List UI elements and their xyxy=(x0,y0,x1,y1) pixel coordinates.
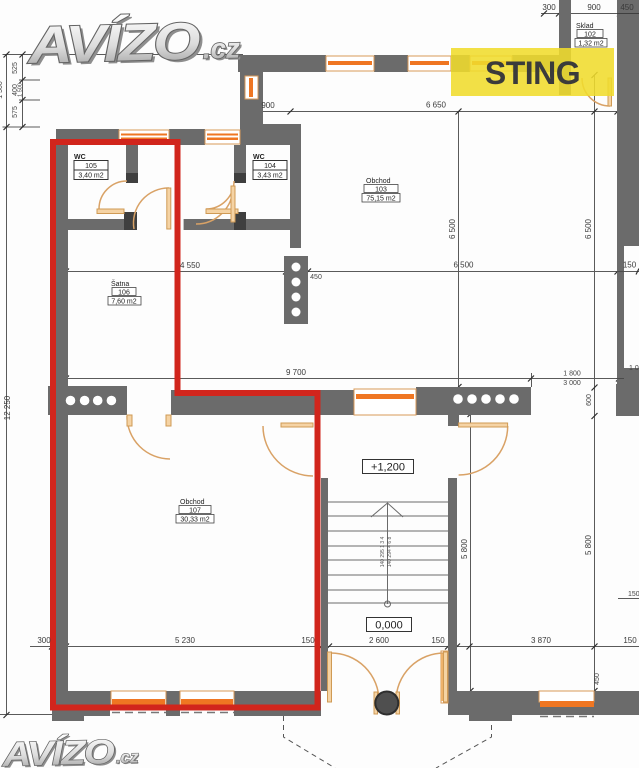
svg-text:300: 300 xyxy=(37,636,51,645)
svg-text:150: 150 xyxy=(431,636,445,645)
svg-text:1 800: 1 800 xyxy=(563,371,581,378)
svg-text:525: 525 xyxy=(12,62,19,74)
svg-text:5 230: 5 230 xyxy=(175,636,196,645)
svg-text:STING: STING xyxy=(485,55,580,91)
svg-text:450: 450 xyxy=(594,673,601,685)
svg-text:4 550: 4 550 xyxy=(180,261,201,270)
svg-text:450: 450 xyxy=(620,3,634,12)
svg-text:75,15 m2: 75,15 m2 xyxy=(366,196,395,203)
svg-text:300: 300 xyxy=(542,3,556,12)
svg-text:575: 575 xyxy=(12,106,19,118)
svg-text:6 500: 6 500 xyxy=(453,261,474,270)
svg-text:3,43 m2: 3,43 m2 xyxy=(257,173,282,180)
svg-text:12 250: 12 250 xyxy=(3,395,12,420)
svg-text:140 294 4 6 8: 140 294 4 6 8 xyxy=(387,536,393,567)
svg-text:7,60 m2: 7,60 m2 xyxy=(111,299,136,306)
svg-text:102: 102 xyxy=(584,32,596,39)
svg-text:104: 104 xyxy=(264,163,276,170)
svg-text:9 700: 9 700 xyxy=(286,368,307,377)
svg-text:WC: WC xyxy=(253,154,265,161)
svg-text:1 500: 1 500 xyxy=(0,81,4,99)
svg-text:1 500: 1 500 xyxy=(18,83,24,97)
svg-text:Sklad: Sklad xyxy=(576,23,594,30)
svg-text:150: 150 xyxy=(623,261,637,270)
svg-text:107: 107 xyxy=(189,508,201,515)
svg-text:600: 600 xyxy=(586,394,593,406)
svg-text:.cz: .cz xyxy=(116,747,140,767)
svg-text:3 870: 3 870 xyxy=(531,636,552,645)
svg-text:6 500: 6 500 xyxy=(584,218,593,239)
svg-text:5 800: 5 800 xyxy=(584,534,593,555)
svg-text:3,40 m2: 3,40 m2 xyxy=(78,173,103,180)
svg-text:5 800: 5 800 xyxy=(460,538,469,559)
svg-text:6 650: 6 650 xyxy=(426,101,447,110)
svg-text:30,33 m2: 30,33 m2 xyxy=(180,517,209,524)
svg-text:150: 150 xyxy=(301,636,315,645)
svg-text:103: 103 xyxy=(375,187,387,194)
svg-text:900: 900 xyxy=(261,101,275,110)
svg-text:Obchod: Obchod xyxy=(180,499,205,506)
svg-text:.cz: .cz xyxy=(202,32,240,64)
svg-text:Obchod: Obchod xyxy=(366,178,391,185)
svg-text:1,32 m2: 1,32 m2 xyxy=(578,41,603,48)
svg-text:WC: WC xyxy=(74,154,86,161)
svg-text:900: 900 xyxy=(587,3,601,12)
svg-text:Šatna: Šatna xyxy=(111,279,129,288)
svg-text:450: 450 xyxy=(310,274,322,281)
svg-text:150: 150 xyxy=(623,636,637,645)
svg-text:1 000: 1 000 xyxy=(629,365,639,372)
svg-text:140 295 1 3 4: 140 295 1 3 4 xyxy=(380,536,386,567)
svg-text:0,000: 0,000 xyxy=(375,620,403,632)
svg-text:6 500: 6 500 xyxy=(448,218,457,239)
svg-text:3 000: 3 000 xyxy=(563,380,581,387)
svg-text:AVÍZO: AVÍZO xyxy=(26,12,202,74)
svg-text:+1,200: +1,200 xyxy=(371,462,405,474)
svg-text:AVÍZO: AVÍZO xyxy=(1,733,115,768)
svg-text:106: 106 xyxy=(118,290,130,297)
svg-text:150: 150 xyxy=(628,591,639,598)
svg-text:2 600: 2 600 xyxy=(369,636,390,645)
svg-text:105: 105 xyxy=(85,163,97,170)
